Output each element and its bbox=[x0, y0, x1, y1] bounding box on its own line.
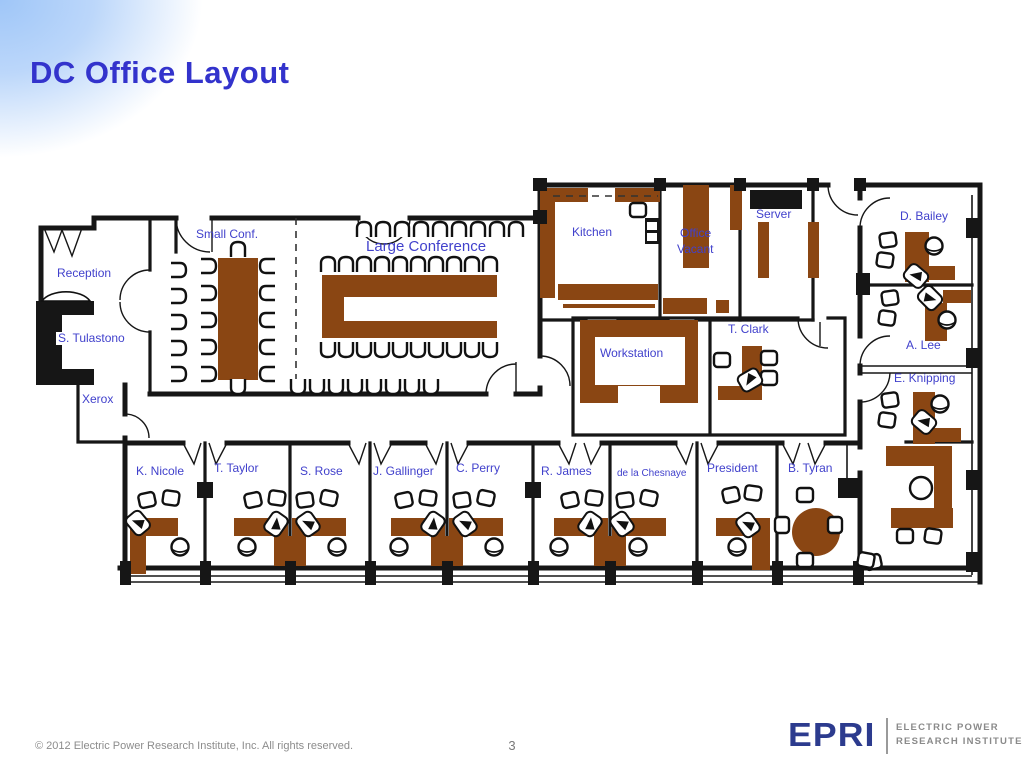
room-label-d-bailey: D. Bailey bbox=[900, 210, 948, 223]
header-gradient bbox=[0, 0, 260, 190]
guest-chair-icon bbox=[797, 553, 813, 567]
epri-wordmark: EPRI bbox=[788, 716, 876, 754]
conference-chair-icon bbox=[321, 342, 335, 357]
room-label-small-conf: Small Conf. bbox=[196, 228, 258, 241]
conference-chair-icon bbox=[447, 342, 461, 357]
conference-chair-icon bbox=[171, 315, 186, 329]
conference-chair-icon bbox=[201, 340, 216, 354]
conference-chair-icon bbox=[201, 313, 216, 327]
room-label-t-taylor: T. Taylor bbox=[214, 462, 258, 475]
room-label-reception: Reception bbox=[57, 267, 111, 280]
room-label-server: Server bbox=[756, 208, 791, 221]
guest-chair-icon bbox=[630, 203, 646, 217]
desk-chair-icon bbox=[729, 539, 746, 556]
guest-chair-icon bbox=[828, 517, 842, 533]
conference-chair-icon bbox=[201, 259, 216, 273]
conference-chair-icon bbox=[509, 222, 523, 237]
guest-chair-icon bbox=[857, 552, 875, 569]
conference-chair-icon bbox=[429, 342, 443, 357]
guest-chair-icon bbox=[477, 489, 496, 506]
conference-chair-icon bbox=[339, 257, 353, 272]
guest-chair-icon bbox=[244, 491, 263, 508]
guest-chair-icon bbox=[775, 517, 789, 533]
conference-chair-icon bbox=[321, 257, 335, 272]
conference-chair-icon bbox=[171, 367, 186, 381]
conference-chair-icon bbox=[260, 340, 275, 354]
conference-chair-icon bbox=[465, 257, 479, 272]
conference-chair-icon bbox=[411, 257, 425, 272]
conference-chair-icon bbox=[483, 342, 497, 357]
conference-chair-icon bbox=[483, 257, 497, 272]
conference-chair-icon bbox=[411, 342, 425, 357]
room-label-k-nicole: K. Nicole bbox=[136, 465, 184, 478]
conference-chair-icon bbox=[375, 342, 389, 357]
conference-chair-icon bbox=[429, 257, 443, 272]
room-label-j-gallinger: J. Gallinger bbox=[373, 465, 434, 478]
guest-chair-icon bbox=[296, 492, 314, 508]
desk-chair-icon bbox=[926, 238, 943, 255]
conference-chair-icon bbox=[452, 222, 466, 237]
desk-chair-icon bbox=[391, 539, 408, 556]
guest-chair-icon bbox=[879, 232, 897, 248]
room-label-office-vacant-line1: Office bbox=[680, 227, 711, 240]
room-label-large-conference: Large Conference bbox=[366, 240, 486, 253]
room-label-president: President bbox=[707, 462, 758, 475]
guest-chair-icon bbox=[744, 485, 762, 501]
conference-chair-icon bbox=[291, 379, 305, 394]
conference-chair-icon bbox=[367, 379, 381, 394]
guest-chair-icon bbox=[761, 371, 777, 385]
guest-chair-icon bbox=[419, 490, 437, 506]
conference-chair-icon bbox=[171, 341, 186, 355]
conference-chair-icon bbox=[386, 379, 400, 394]
conference-chair-icon bbox=[447, 257, 461, 272]
guest-chair-icon bbox=[320, 489, 339, 506]
floorplan-container: ReceptionS. TulastonoXeroxSmall Conf.Lar… bbox=[28, 170, 1008, 600]
conference-chair-icon bbox=[260, 313, 275, 327]
guest-chair-icon bbox=[878, 310, 896, 326]
guest-chair-icon bbox=[585, 490, 603, 506]
conference-chair-icon bbox=[201, 367, 216, 381]
guest-chair-icon bbox=[797, 488, 813, 502]
conference-chair-icon bbox=[171, 289, 186, 303]
guest-chair-icon bbox=[897, 529, 913, 543]
conference-chair-icon bbox=[375, 257, 389, 272]
guest-chair-icon bbox=[878, 412, 896, 428]
room-label-e-knipping: E. Knipping bbox=[894, 372, 955, 385]
guest-chair-icon bbox=[722, 486, 741, 503]
slide: DC Office Layout bbox=[0, 0, 1024, 768]
desk-chair-icon bbox=[551, 539, 568, 556]
room-label-t-clark: T. Clark bbox=[728, 323, 769, 336]
conference-chair-icon bbox=[405, 379, 419, 394]
desk-chair-icon bbox=[939, 312, 956, 329]
conference-chair-icon bbox=[357, 257, 371, 272]
room-label-a-lee: A. Lee bbox=[906, 339, 941, 352]
room-label-r-james: R. James bbox=[541, 465, 592, 478]
room-label-c-perry: C. Perry bbox=[456, 462, 500, 475]
guest-chair-icon bbox=[162, 490, 180, 506]
guest-chair-icon bbox=[876, 252, 894, 268]
conference-chair-icon bbox=[433, 222, 447, 237]
conference-chair-icon bbox=[414, 222, 428, 237]
conference-chair-icon bbox=[231, 242, 245, 257]
conference-chair-icon bbox=[393, 342, 407, 357]
conference-chair-icon bbox=[357, 222, 371, 237]
guest-chair-icon bbox=[561, 491, 580, 508]
conference-chair-icon bbox=[201, 286, 216, 300]
lounge-stool-icon bbox=[910, 477, 932, 499]
guest-chair-icon bbox=[453, 492, 471, 508]
conference-chair-icon bbox=[310, 379, 324, 394]
conference-chair-icon bbox=[231, 379, 245, 394]
conference-chair-icon bbox=[490, 222, 504, 237]
room-label-s-rose: S. Rose bbox=[300, 465, 343, 478]
guest-chair-icon bbox=[616, 492, 634, 508]
conference-chair-icon bbox=[329, 379, 343, 394]
guest-chair-icon bbox=[714, 353, 730, 367]
epri-logo: EPRI ELECTRIC POWER RESEARCH INSTITUTE bbox=[788, 714, 1008, 760]
room-label-xerox: Xerox bbox=[82, 393, 113, 406]
desk-chair-icon bbox=[239, 539, 256, 556]
conference-chair-icon bbox=[260, 259, 275, 273]
guest-chair-icon bbox=[881, 290, 899, 306]
desk-chair-icon bbox=[329, 539, 346, 556]
conference-chair-icon bbox=[465, 342, 479, 357]
desk-chair-icon bbox=[932, 396, 949, 413]
guest-chair-icon bbox=[395, 491, 414, 508]
conference-chair-icon bbox=[393, 257, 407, 272]
logo-tagline-line1: ELECTRIC POWER bbox=[896, 722, 999, 733]
logo-divider bbox=[886, 718, 888, 754]
guest-chair-icon bbox=[924, 528, 942, 544]
conference-chair-icon bbox=[424, 379, 438, 394]
guest-chair-icon bbox=[761, 351, 777, 365]
desk-chair-icon bbox=[486, 539, 503, 556]
conference-chair-icon bbox=[260, 367, 275, 381]
conference-chair-icon bbox=[171, 263, 186, 277]
desk-chair-icon bbox=[630, 539, 647, 556]
conference-chair-icon bbox=[348, 379, 362, 394]
guest-chair-icon bbox=[138, 491, 157, 508]
conference-chair-icon bbox=[471, 222, 485, 237]
conference-chair-icon bbox=[376, 222, 390, 237]
conference-chair-icon bbox=[395, 222, 409, 237]
conference-chair-icon bbox=[357, 342, 371, 357]
guest-chair-icon bbox=[640, 489, 659, 506]
conference-chair-icon bbox=[339, 342, 353, 357]
room-label-kitchen: Kitchen bbox=[572, 226, 612, 239]
logo-tagline-line2: RESEARCH INSTITUTE bbox=[896, 736, 1023, 747]
room-label-b-tyran: B. Tyran bbox=[788, 462, 832, 475]
guest-chair-icon bbox=[881, 392, 899, 408]
room-label-de-la-chesnaye: de la Chesnaye bbox=[617, 467, 687, 480]
conference-chair-icon bbox=[260, 286, 275, 300]
room-label-office-vacant-line2: Vacant bbox=[677, 243, 713, 256]
room-label-workstation: Workstation bbox=[600, 347, 663, 360]
page-title: DC Office Layout bbox=[30, 55, 289, 91]
floorplan bbox=[28, 170, 1008, 600]
desk-chair-icon bbox=[172, 539, 189, 556]
guest-chair-icon bbox=[268, 490, 286, 506]
room-label-s-tulastono: S. Tulastono bbox=[56, 332, 127, 345]
